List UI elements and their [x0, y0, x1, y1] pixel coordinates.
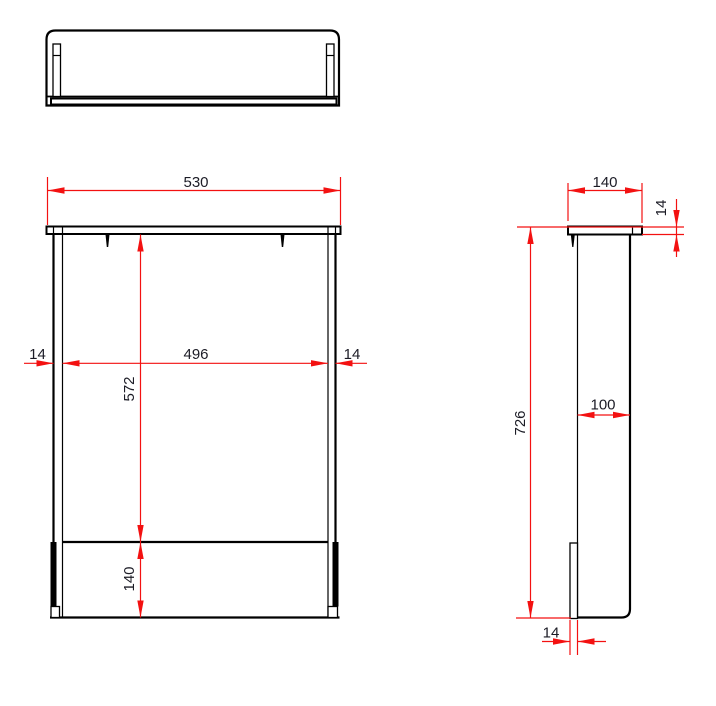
dim-label-right-thickness: 14	[344, 346, 361, 363]
cam-fitting-right	[281, 235, 285, 248]
front-view-dimensions: 530 14 496 14 572 140	[24, 174, 367, 618]
front-dim-lines	[24, 177, 367, 618]
dim-label-panel-depth: 100	[590, 397, 615, 414]
dim-label-top-depth: 140	[592, 174, 617, 191]
right-leg-section	[327, 44, 335, 97]
top-panel	[47, 227, 341, 235]
top-view	[47, 31, 340, 106]
dim-label-overall-width: 530	[183, 174, 208, 191]
drawing-page: { "drawing": { "type": "furniture-orthog…	[0, 0, 716, 706]
left-leg-rail-overlap	[51, 542, 57, 607]
front-rail-plan	[51, 99, 337, 105]
cam-fitting-left	[106, 235, 110, 248]
dim-label-top-thickness: 14	[653, 200, 670, 217]
side-view-dimensions: 140 14 726 100 14	[512, 174, 684, 655]
dim-label-opening-height: 572	[121, 376, 138, 401]
dim-label-overall-height: 726	[512, 410, 529, 435]
left-foot-notch	[51, 607, 60, 618]
cam-fitting-side	[571, 235, 575, 248]
right-leg-rail-overlap	[333, 542, 339, 607]
dim-label-left-thickness: 14	[29, 346, 46, 363]
top-panel-side	[568, 227, 642, 235]
technical-drawing-canvas: 530 14 496 14 572 140	[0, 0, 716, 706]
dim-label-rail-height: 140	[121, 566, 138, 591]
dim-label-inner-width: 496	[183, 346, 208, 363]
front-view	[47, 227, 341, 618]
right-foot-notch	[328, 607, 338, 618]
tabletop-outline	[47, 31, 340, 106]
side-dim-arrows	[527, 187, 679, 645]
front-dim-arrows	[37, 187, 353, 617]
left-leg-section	[53, 44, 61, 97]
side-panel-back-and-bottom	[578, 235, 631, 618]
front-rail-side	[570, 543, 578, 619]
side-view	[568, 227, 642, 619]
side-dim-lines	[516, 183, 684, 655]
dim-label-rail-thickness: 14	[543, 625, 560, 642]
